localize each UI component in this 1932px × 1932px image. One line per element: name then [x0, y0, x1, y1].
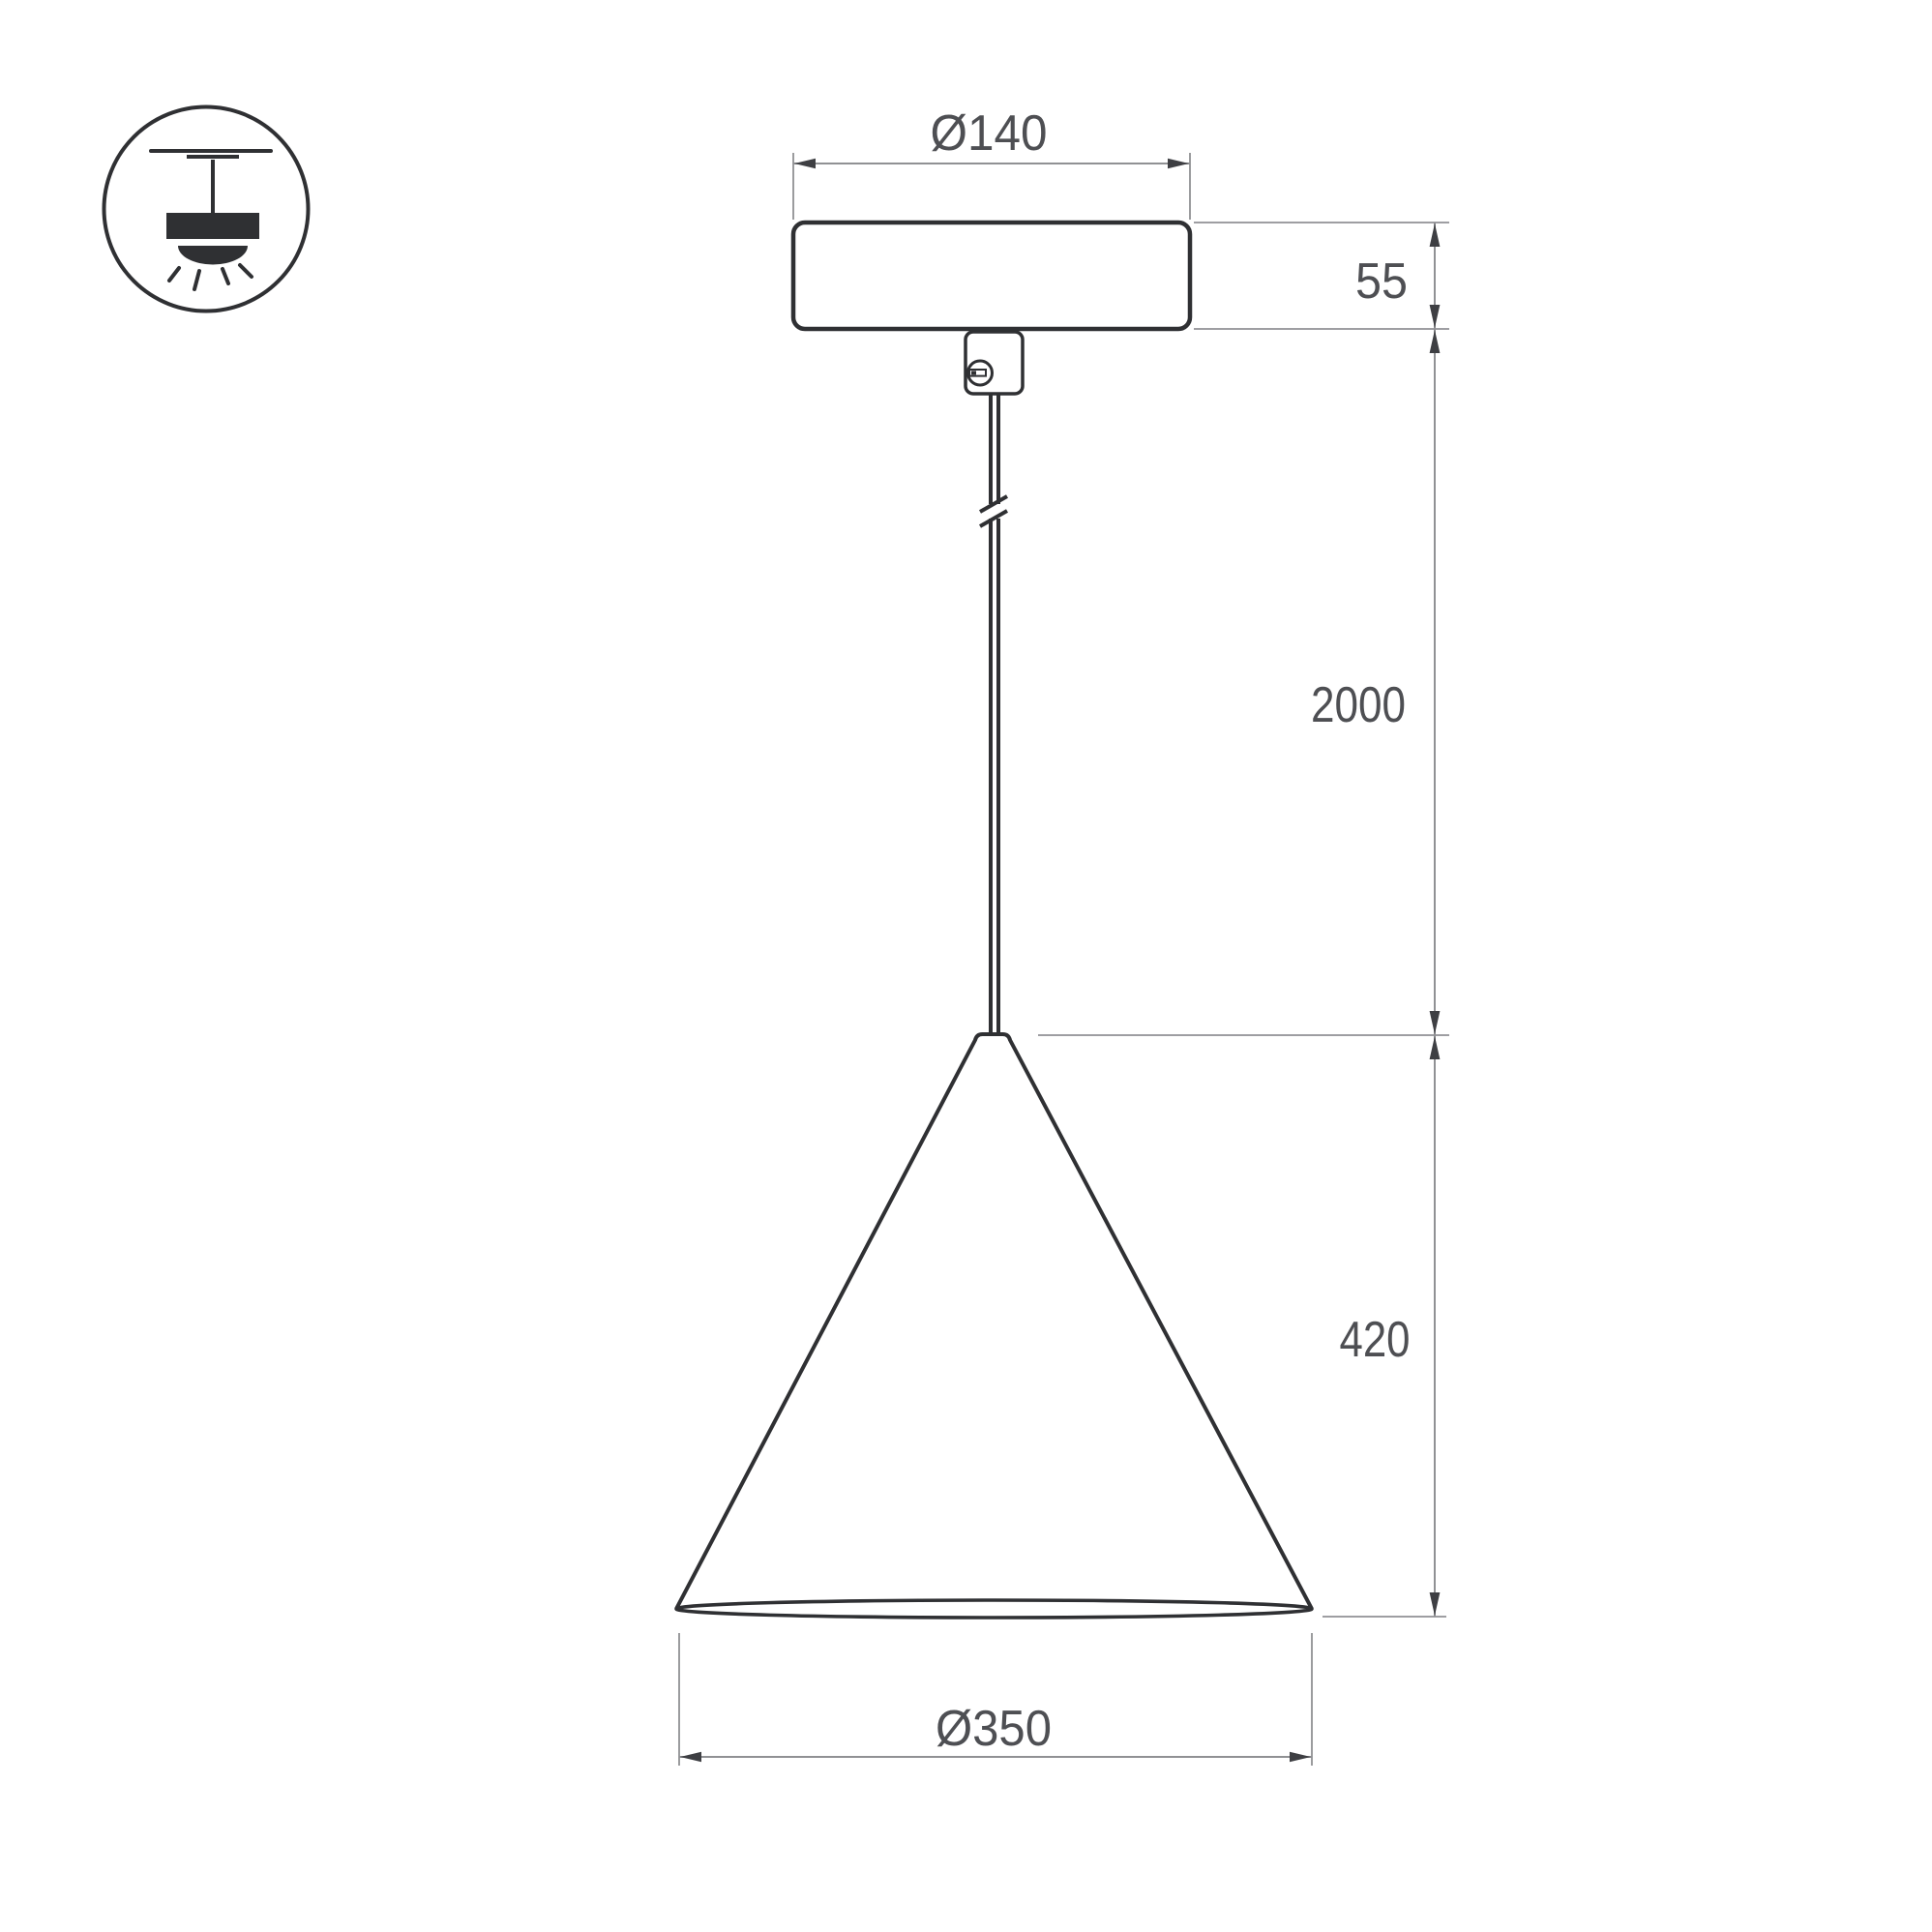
dim-suspension-length: 2000: [1038, 330, 1449, 1035]
dim-label-suspension-length: 2000: [1311, 677, 1406, 733]
dim-canopy-diameter: Ø140: [793, 105, 1190, 220]
arrowhead: [794, 159, 816, 168]
dim-label-canopy-diameter: Ø140: [931, 105, 1048, 162]
light-ray: [240, 265, 252, 277]
legend-lamp-dome: [178, 246, 248, 265]
arrowhead: [1430, 1592, 1441, 1616]
dim-label-canopy-height: 55: [1355, 253, 1408, 310]
arrowhead: [1168, 159, 1189, 168]
dim-shade-diameter: Ø350: [679, 1633, 1312, 1766]
arrowhead: [1430, 1036, 1441, 1059]
cable-break-mark: [980, 496, 1007, 526]
light-ray: [223, 269, 228, 283]
pendant-lamp-technical-drawing: Ø140 55 2000 420 Ø350: [0, 0, 1932, 1932]
arrowhead: [1430, 330, 1441, 353]
dim-label-shade-diameter: Ø350: [936, 1701, 1052, 1757]
dim-label-shade-height: 420: [1340, 1312, 1411, 1368]
shade-rim: [676, 1600, 1312, 1618]
arrowhead: [680, 1752, 701, 1762]
arrowhead: [1430, 1011, 1441, 1034]
legend-light-rays-icon: [169, 265, 252, 289]
pendant-lamp-mount-icon: [104, 107, 309, 312]
ceiling-canopy-assembly: [793, 223, 1190, 394]
dim-canopy-height: 55: [1194, 223, 1449, 329]
legend-circle-outline: [104, 107, 309, 312]
screw-slot-fill: [971, 371, 976, 374]
break-slash: [980, 496, 1007, 512]
break-slash: [980, 511, 1007, 526]
canopy-outline: [793, 223, 1190, 329]
lamp-shade: [676, 1034, 1312, 1618]
light-ray: [194, 271, 199, 289]
drawing-canvas: Ø140 55 2000 420 Ø350: [0, 0, 1932, 1932]
shade-cone: [676, 1034, 1312, 1609]
suspension-cable: [980, 394, 1007, 1036]
arrowhead: [1430, 305, 1441, 328]
dim-shade-height: 420: [1323, 1036, 1446, 1617]
light-ray: [169, 268, 179, 281]
arrowhead: [1290, 1752, 1311, 1762]
screw-head-icon: [968, 361, 993, 385]
legend-lamp-body: [166, 213, 259, 239]
arrowhead: [1430, 223, 1441, 247]
